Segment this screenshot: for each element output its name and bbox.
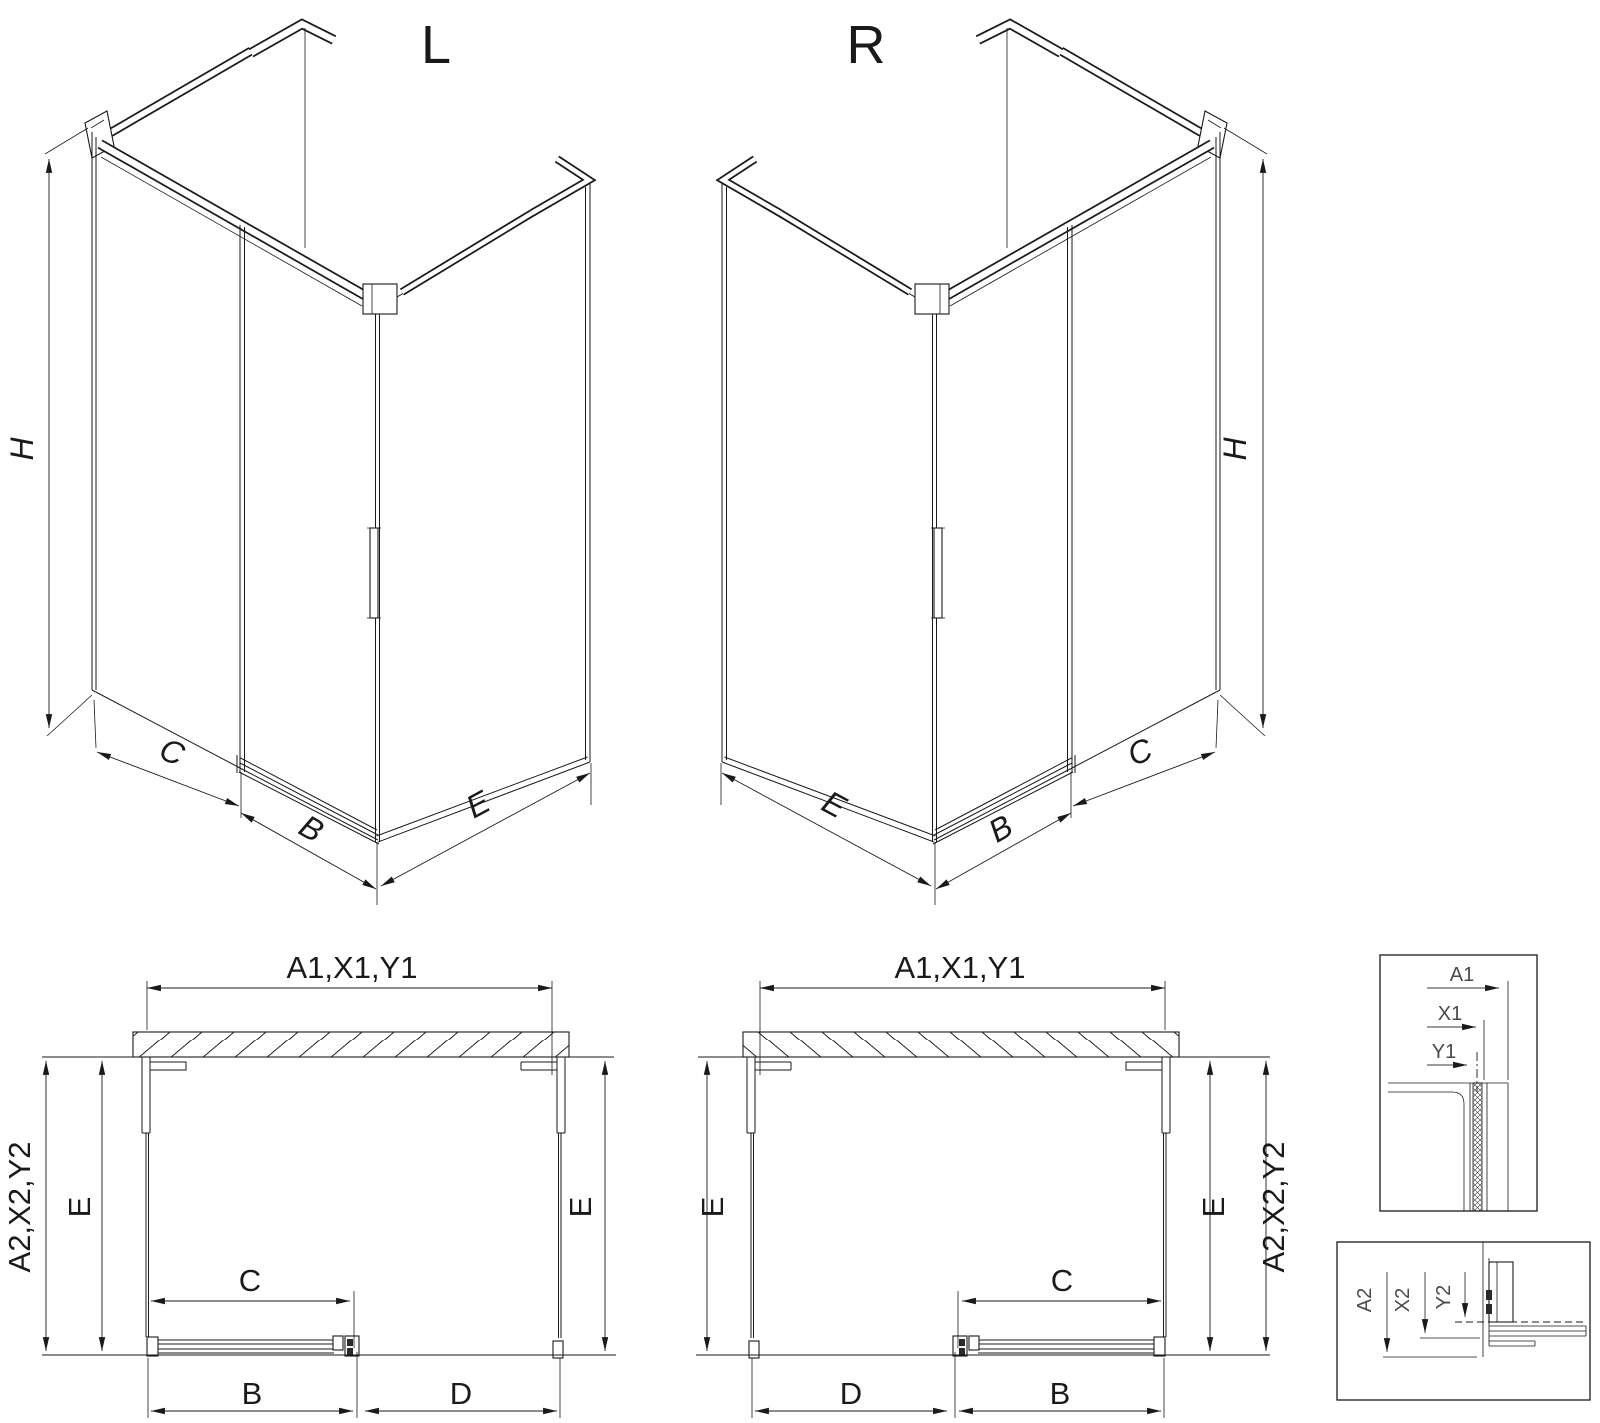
plan-dim-outer-label: A2,X2,Y2 <box>1256 1142 1291 1273</box>
detail-label-x2: X2 <box>1392 1288 1414 1312</box>
detail-label-y2: Y2 <box>1433 1285 1455 1309</box>
plan-dim-d-label: D <box>450 1376 472 1411</box>
plan-dim-c-label: C <box>239 1263 261 1298</box>
glass-panel-section <box>1473 1083 1482 1211</box>
plan-dim-d-label: D <box>840 1376 862 1411</box>
dim-label-e: E <box>816 783 852 825</box>
dim-label-b: B <box>293 808 329 850</box>
detail-wall-profile-section <box>1388 1083 1508 1211</box>
iso-view-left: L H C B E <box>4 15 591 905</box>
plan-dim-c-label: C <box>1051 1263 1073 1298</box>
iso-view-right: R H C B E <box>721 15 1267 905</box>
plan-view-left: A1,X1,Y1 A2,X2,Y2 E E C B D <box>2 950 616 1418</box>
dim-label-c: C <box>155 731 191 773</box>
dim-label-c: C <box>1122 730 1158 772</box>
view-label-right: R <box>847 15 886 75</box>
detail-label-x1: X1 <box>1438 1003 1462 1025</box>
detail-bottom-profile-section <box>1486 1258 1586 1346</box>
plan-dim-top-label: A1,X1,Y1 <box>287 950 418 985</box>
plan-dim-e-right-label: E <box>1196 1197 1231 1218</box>
plan-dim-outer-label: A2,X2,Y2 <box>2 1142 37 1273</box>
view-label-left: L <box>421 15 451 75</box>
dim-label-e: E <box>460 783 496 825</box>
plan-dim-b-label: B <box>242 1376 263 1411</box>
plan-view-right: A1,X1,Y1 A2,X2,Y2 E E C B D <box>695 950 1291 1418</box>
plan-dim-b-label: B <box>1050 1376 1071 1411</box>
dim-label-b: B <box>982 808 1018 850</box>
plan-dim-e-left-label: E <box>62 1197 97 1218</box>
detail-box-bottom: A2 X2 Y2 <box>1337 1242 1590 1400</box>
shower-enclosure-drawing: L H C B E R H C B E A1,X1,Y1 A2,X2,Y2 E … <box>0 0 1600 1423</box>
dim-label-h: H <box>1217 437 1253 461</box>
detail-box-top: A1 X1 Y1 <box>1380 955 1537 1211</box>
plan-dim-e-right-label: E <box>563 1197 598 1218</box>
detail-label-y1: Y1 <box>1432 1041 1456 1063</box>
plan-dim-top-label: A1,X1,Y1 <box>895 950 1026 985</box>
dim-label-h: H <box>4 437 40 461</box>
technical-drawing-sheet: L H C B E R H C B E A1,X1,Y1 A2,X2,Y2 E … <box>0 0 1600 1423</box>
plan-dim-e-left-label: E <box>695 1197 730 1218</box>
detail-label-a2: A2 <box>1354 1288 1376 1312</box>
detail-label-a1: A1 <box>1450 964 1474 986</box>
